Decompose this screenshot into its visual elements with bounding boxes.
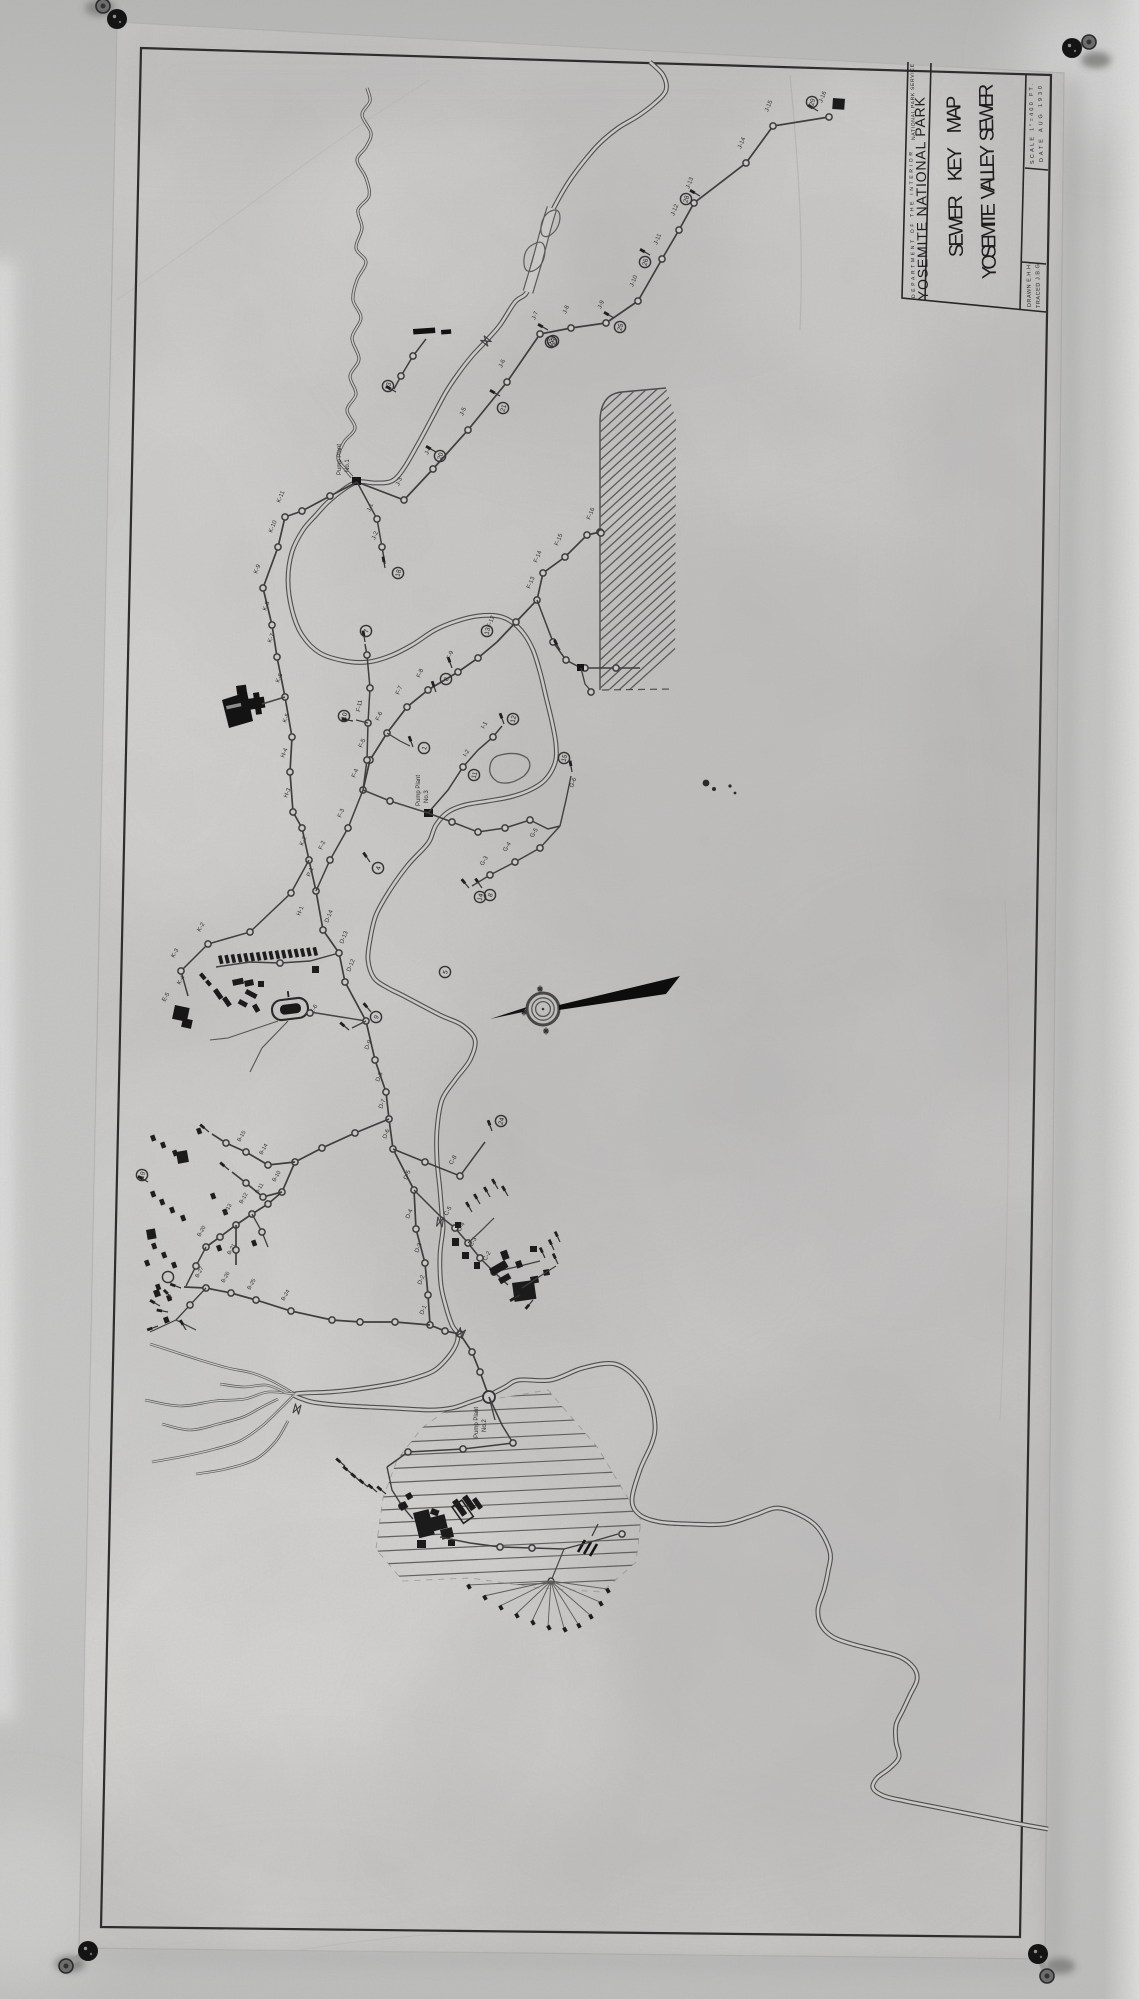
svg-text:YOSEMITE VALLEY SEWER: YOSEMITE VALLEY SEWER [976,83,1001,279]
svg-text:Pump Plant: Pump Plant [474,1407,480,1438]
svg-text:Pump Plant: Pump Plant [416,775,422,806]
svg-text:DRAWN E.H.H.: DRAWN E.H.H. [1026,263,1033,308]
svg-text:No.1: No.1 [345,459,351,472]
svg-text:Pump Plant: Pump Plant [337,444,343,475]
svg-text:No.3: No.3 [424,790,430,803]
svg-text:No.2: No.2 [482,1419,488,1432]
svg-text:SEWER KEY MAP: SEWER KEY MAP [943,94,968,257]
svg-text:TRACED J.B.G.: TRACED J.B.G. [1035,262,1042,309]
